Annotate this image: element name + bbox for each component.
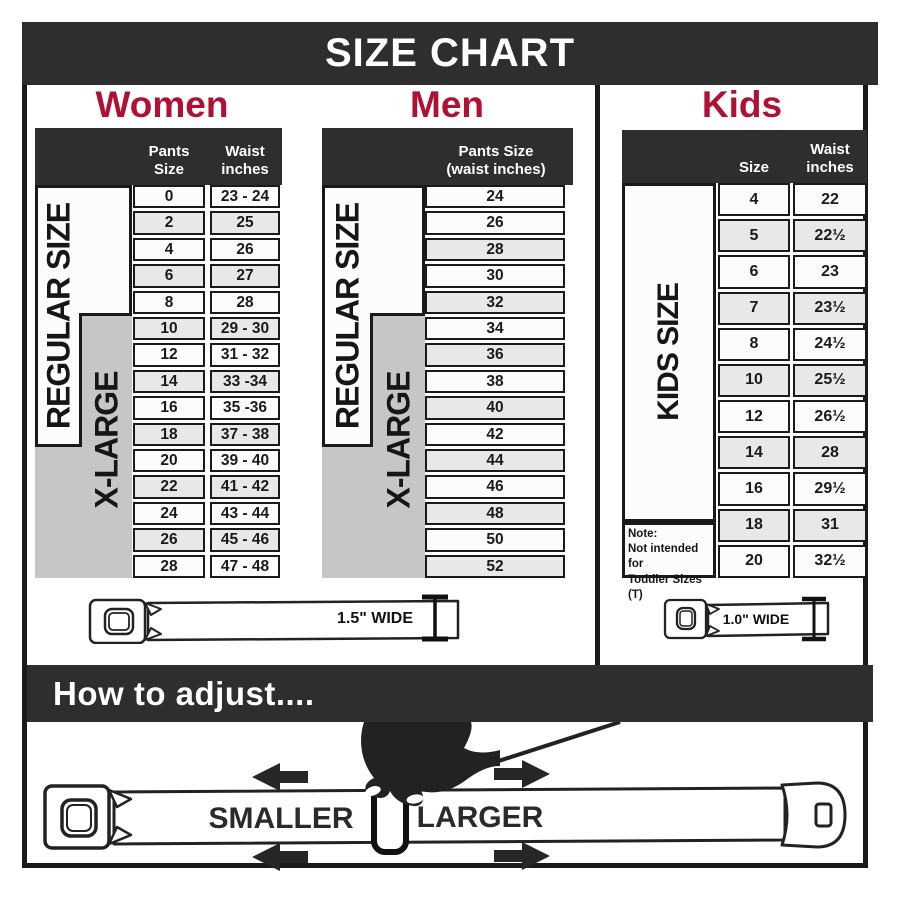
women-waist-cell: 23 - 24 [210, 185, 280, 208]
arrow-left-icon [252, 763, 308, 791]
arrow-right-icon [494, 760, 550, 788]
men-pants-size-cell: 40 [425, 396, 565, 419]
kids-belt-width-label: 1.0" WIDE [714, 611, 798, 627]
kids-size-cell: 12 [718, 400, 790, 433]
men-pants-size-cell: 50 [425, 528, 565, 551]
men-pants-size-cell: 30 [425, 264, 565, 287]
size-chart-page: SIZE CHART Women Men Kids Pants Size Wai… [0, 0, 900, 900]
kids-size-label: KIDS SIZE [652, 283, 686, 421]
kids-note: Note: Not intended for Toddler Sizes (T) [622, 522, 716, 578]
kids-size-cell: 18 [718, 509, 790, 542]
larger-label: LARGER [402, 801, 558, 835]
women-waist-cell: 33 -34 [210, 370, 280, 393]
kids-size-cell: 4 [718, 183, 790, 216]
men-pants-size-cell: 46 [425, 475, 565, 498]
kids-waist-cell: 22½ [793, 219, 867, 252]
women-waist-cell: 29 - 30 [210, 317, 280, 340]
men-pants-size-cell: 44 [425, 449, 565, 472]
women-waist-cell: 26 [210, 238, 280, 261]
women-table-header: Pants Size Waist inches [35, 128, 282, 185]
men-pants-size-cell: 26 [425, 211, 565, 234]
kids-heading: Kids [657, 84, 827, 126]
women-pants-size-cell: 2 [133, 211, 205, 234]
men-pants-size-cell: 32 [425, 291, 565, 314]
women-regular-size-label: REGULAR SIZE [41, 203, 78, 429]
kids-waist-cell: 31 [793, 509, 867, 542]
adjust-heading: How to adjust.... [53, 675, 315, 713]
women-pants-size-cell: 28 [133, 555, 205, 578]
chart-title-bar: SIZE CHART [22, 22, 878, 85]
kids-waist-cell: 32½ [793, 545, 867, 578]
men-size-table: Pants Size (waist inches) REGULAR SIZE X… [322, 128, 573, 578]
kids-size-table: Size Waist inches KIDS SIZE Note: Not in… [622, 130, 867, 578]
men-pants-size-header: Pants Size (waist inches) [425, 143, 567, 186]
women-waist-cell: 35 -36 [210, 396, 280, 419]
leader-line [483, 722, 620, 766]
men-xlarge-label: X-LARGE [381, 372, 418, 509]
women-size-table: Pants Size Waist inches REGULAR SIZE X-L… [35, 128, 282, 578]
men-regular-size-label: REGULAR SIZE [330, 203, 367, 429]
kids-size-cell: 16 [718, 472, 790, 505]
kids-size-cell: 10 [718, 364, 790, 397]
smaller-label: SMALLER [201, 802, 361, 836]
women-pants-size-cell: 8 [133, 291, 205, 314]
page-title: SIZE CHART [325, 31, 575, 76]
kids-waist-cell: 23½ [793, 292, 867, 325]
kids-waist-cell: 23 [793, 255, 867, 288]
women-heading: Women [77, 84, 247, 126]
women-waist-cell: 41 - 42 [210, 475, 280, 498]
kids-waist-header: Waist inches [793, 141, 867, 184]
women-pants-size-cell: 12 [133, 343, 205, 366]
men-pants-size-cell: 34 [425, 317, 565, 340]
women-waist-cell: 45 - 46 [210, 528, 280, 551]
men-pants-size-cell: 28 [425, 238, 565, 261]
women-waist-cell: 47 - 48 [210, 555, 280, 578]
kids-waist-cell: 29½ [793, 472, 867, 505]
men-pants-size-cell: 38 [425, 370, 565, 393]
women-pants-size-cell: 22 [133, 475, 205, 498]
men-pants-size-cell: 48 [425, 502, 565, 525]
kids-size-cell: 5 [718, 219, 790, 252]
women-pants-size-cell: 10 [133, 317, 205, 340]
women-waist-cell: 27 [210, 264, 280, 287]
women-waist-cell: 31 - 32 [210, 343, 280, 366]
men-pants-size-cell: 24 [425, 185, 565, 208]
kids-waist-cell: 24½ [793, 328, 867, 361]
women-pants-size-cell: 6 [133, 264, 205, 287]
women-pants-size-cell: 18 [133, 423, 205, 446]
women-waist-cell: 37 - 38 [210, 423, 280, 446]
men-pants-size-cell: 52 [425, 555, 565, 578]
women-waist-cell: 43 - 44 [210, 502, 280, 525]
women-pants-size-cell: 14 [133, 370, 205, 393]
kids-waist-cell: 28 [793, 436, 867, 469]
kids-size-cell: 8 [718, 328, 790, 361]
kids-waist-cell: 22 [793, 183, 867, 216]
men-pants-size-cell: 36 [425, 343, 565, 366]
kids-waist-cell: 25½ [793, 364, 867, 397]
adjust-title-bar: How to adjust.... [27, 665, 873, 722]
kids-size-cell: 14 [718, 436, 790, 469]
women-waist-cell: 39 - 40 [210, 449, 280, 472]
men-table-header: Pants Size (waist inches) [322, 128, 573, 185]
women-waist-cell: 28 [210, 291, 280, 314]
arrow-right-icon [494, 842, 550, 870]
kids-waist-cell: 26½ [793, 400, 867, 433]
women-pants-size-cell: 4 [133, 238, 205, 261]
kids-table-header: Size Waist inches [622, 130, 867, 183]
women-waist-cell: 25 [210, 211, 280, 234]
belt-tip-hole [816, 804, 831, 826]
men-heading: Men [362, 84, 532, 126]
women-xlarge-label: X-LARGE [89, 372, 126, 509]
arrow-left-icon [252, 843, 308, 871]
kids-size-header: Size [718, 159, 790, 183]
adult-belt-width-label: 1.5" WIDE [333, 610, 417, 628]
section-divider [595, 85, 600, 665]
women-pants-size-header: Pants Size [133, 143, 205, 186]
women-pants-size-cell: 16 [133, 396, 205, 419]
belt-tip [782, 783, 845, 847]
kids-table-rows: 4 22 5 22½ 6 23 7 23½ 8 24½ 10 25½ 12 26… [718, 183, 867, 578]
women-pants-size-cell: 0 [133, 185, 205, 208]
kids-size-cell: 20 [718, 545, 790, 578]
adjust-illustration [28, 722, 872, 873]
women-pants-size-cell: 26 [133, 528, 205, 551]
men-table-rows: 24 26 28 30 32 34 36 38 40 42 44 46 [425, 185, 565, 578]
women-pants-size-cell: 24 [133, 502, 205, 525]
kids-size-cell: 7 [718, 292, 790, 325]
women-waist-header: Waist inches [210, 143, 280, 186]
women-pants-size-cell: 20 [133, 449, 205, 472]
kids-size-cell: 6 [718, 255, 790, 288]
men-pants-size-cell: 42 [425, 423, 565, 446]
women-table-rows: 0 23 - 24 2 25 4 26 6 27 8 28 10 29 - 30… [133, 185, 280, 578]
